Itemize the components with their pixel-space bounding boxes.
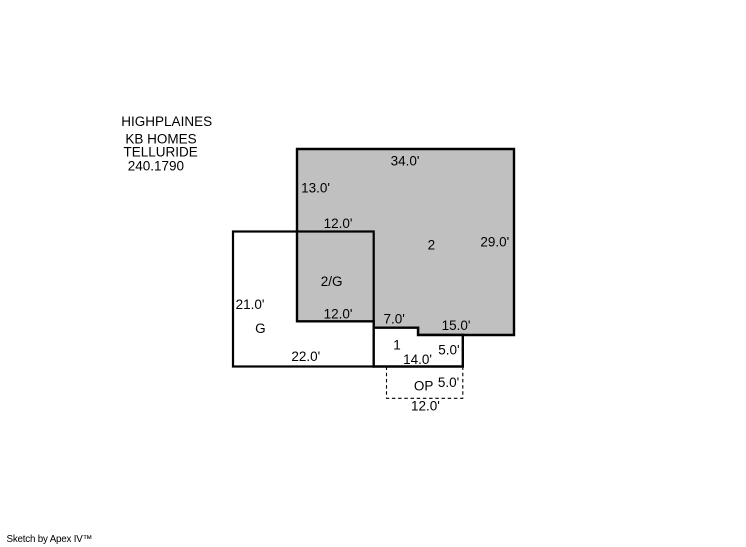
svg-text:22.0': 22.0' xyxy=(291,349,320,364)
svg-text:34.0': 34.0' xyxy=(391,154,420,169)
svg-text:1: 1 xyxy=(393,337,401,352)
svg-text:240.1790: 240.1790 xyxy=(128,159,184,174)
svg-text:TELLURIDE: TELLURIDE xyxy=(123,145,197,160)
svg-text:14.0': 14.0' xyxy=(403,352,432,367)
svg-text:7.0': 7.0' xyxy=(384,312,405,327)
svg-text:15.0': 15.0' xyxy=(442,318,471,333)
svg-text:G: G xyxy=(255,321,266,336)
svg-text:29.0': 29.0' xyxy=(480,235,509,250)
svg-text:Sketch by Apex IV™: Sketch by Apex IV™ xyxy=(7,534,93,545)
svg-text:13.0': 13.0' xyxy=(301,180,330,195)
svg-text:HIGHPLAINES: HIGHPLAINES xyxy=(121,114,212,129)
svg-text:5.0': 5.0' xyxy=(438,375,459,390)
svg-text:12.0': 12.0' xyxy=(324,216,353,231)
svg-text:OP: OP xyxy=(414,378,434,393)
svg-text:2: 2 xyxy=(428,238,436,253)
svg-text:12.0': 12.0' xyxy=(324,307,353,322)
svg-text:5.0': 5.0' xyxy=(438,343,459,358)
svg-text:12.0': 12.0' xyxy=(411,398,440,413)
svg-text:2/G: 2/G xyxy=(321,274,343,289)
svg-text:21.0': 21.0' xyxy=(236,297,265,312)
